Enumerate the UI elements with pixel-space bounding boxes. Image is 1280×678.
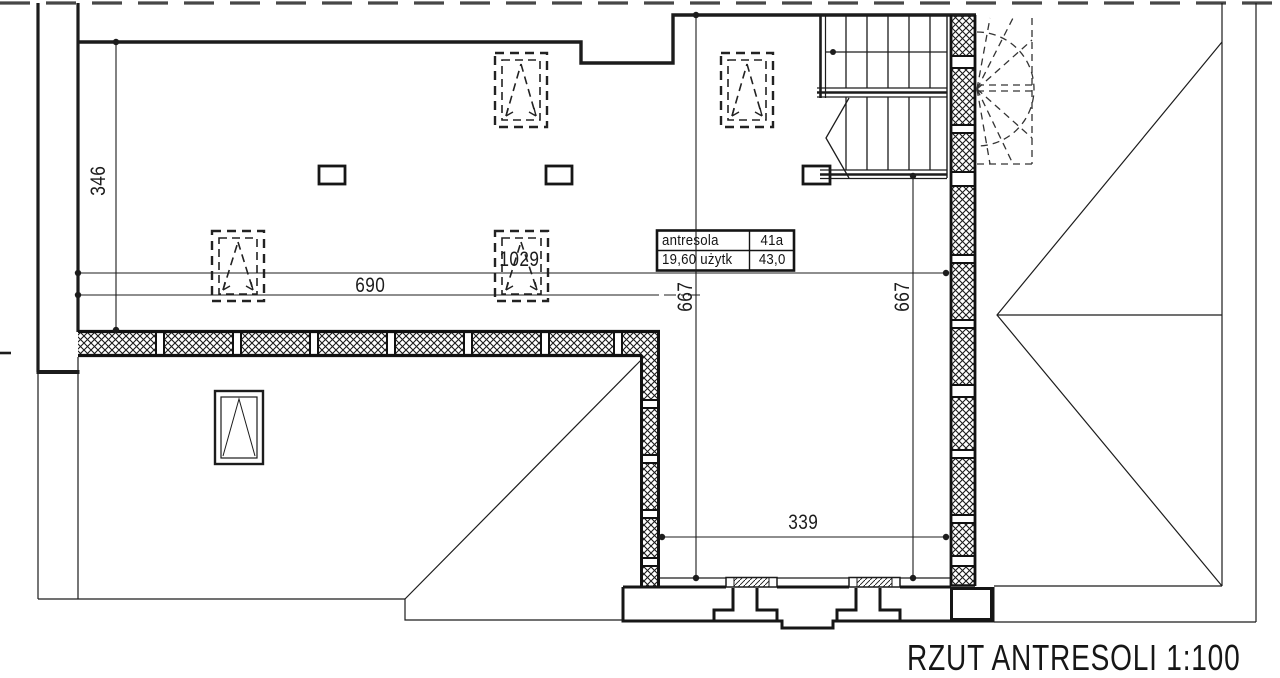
stair-flights xyxy=(817,16,947,179)
area-table-room-number: 41a xyxy=(751,232,793,249)
roof-window-icon-3 xyxy=(212,231,264,301)
mezzanine-outer-walls xyxy=(37,3,977,372)
dim-label-346: 346 xyxy=(84,159,114,203)
area-table-usable-area: 19,60 użytk xyxy=(662,251,746,268)
dim-label-339: 339 xyxy=(773,511,833,535)
dim-label-1029: 1029 xyxy=(489,248,549,272)
chimney-icons xyxy=(319,166,830,184)
insulated-wall-horizontal xyxy=(78,332,660,356)
terrace-footing-outline xyxy=(623,587,993,628)
dim-label-690: 690 xyxy=(340,274,400,298)
door-sill-icon-2 xyxy=(849,578,900,588)
window-icon xyxy=(215,391,263,464)
insulated-wall-vertical-right xyxy=(951,15,975,586)
dim-label-667-right: 667 xyxy=(888,275,918,319)
floorplan-sheet: 346 1029 690 667 667 339 antresola 41a 1… xyxy=(0,0,1280,678)
door-sill-icon-1 xyxy=(726,578,777,588)
dimension-lines xyxy=(78,15,946,578)
sheet-title: RZUT ANTRESOLI 1:100 xyxy=(856,640,1240,676)
winder-stair-dashed-icon xyxy=(977,18,1034,164)
plan-linework xyxy=(0,0,1280,678)
roof-window-icon-1 xyxy=(495,53,547,127)
lower-roof-outline-left xyxy=(0,352,649,620)
area-table-room-name: antresola xyxy=(662,232,746,249)
chimney-icon xyxy=(546,166,572,184)
roof-window-icon-2 xyxy=(721,53,773,127)
chimney-icon xyxy=(319,166,345,184)
insulated-wall-vertical-left xyxy=(642,331,659,587)
dim-label-667-left: 667 xyxy=(671,275,701,319)
area-table-total-area: 43,0 xyxy=(751,251,793,268)
